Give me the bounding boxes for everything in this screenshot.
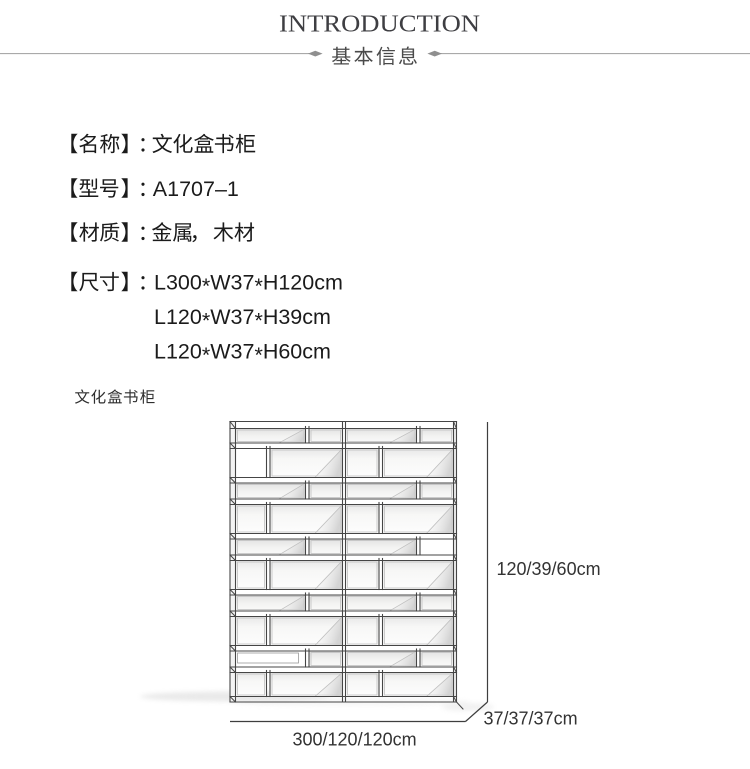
svg-text:120/39/60cm: 120/39/60cm (497, 559, 601, 579)
svg-text:L120*W37*H60cm: L120*W37*H60cm (154, 340, 331, 368)
svg-text:300/120/120cm: 300/120/120cm (293, 730, 417, 750)
svg-text:L120*W37*H39cm: L120*W37*H39cm (154, 305, 331, 333)
svg-text:L300*W37*H120cm: L300*W37*H120cm (154, 271, 343, 299)
svg-text:INTRODUCTION: INTRODUCTION (279, 11, 480, 38)
svg-text:37/37/37cm: 37/37/37cm (484, 709, 578, 729)
svg-text:A1707–1: A1707–1 (153, 177, 239, 201)
